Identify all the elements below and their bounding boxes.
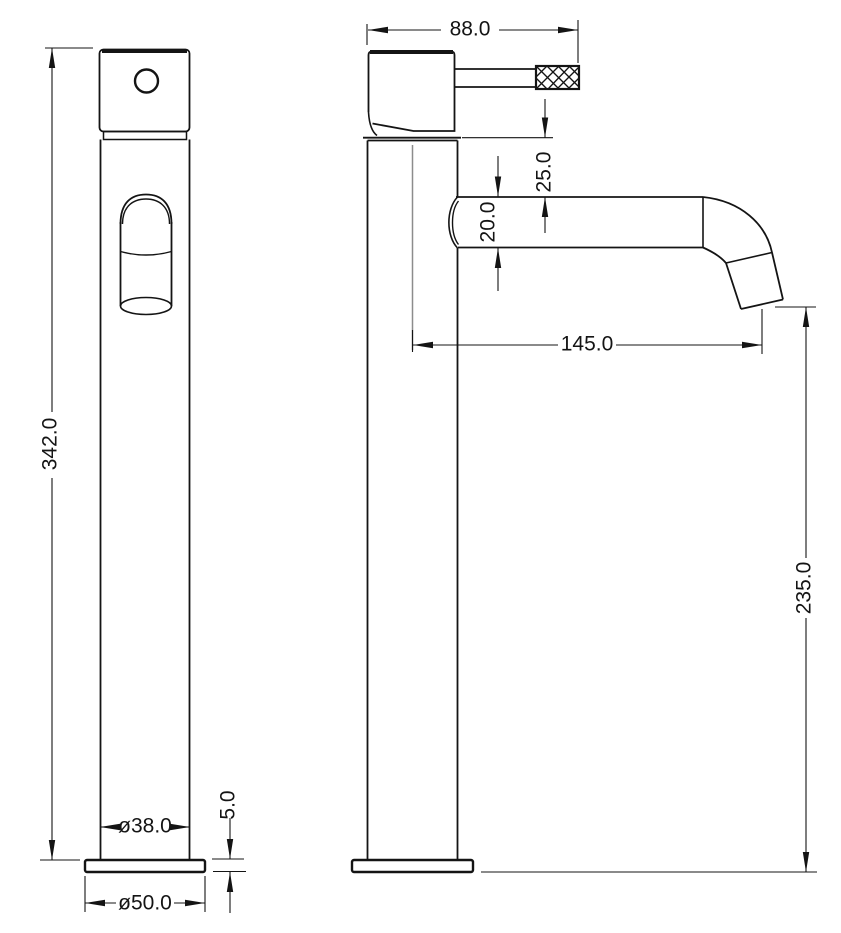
dim-spout-diameter: 20.0	[477, 156, 502, 291]
arrowhead	[100, 824, 120, 830]
arrowhead	[170, 824, 190, 830]
arrowhead	[742, 342, 762, 348]
side-base-plate	[352, 860, 473, 872]
side-head-outline	[369, 52, 455, 132]
hatch-line	[558, 66, 579, 87]
side-view	[352, 52, 783, 873]
arrowhead	[227, 839, 233, 859]
spout-bend-outer	[703, 197, 772, 253]
arrowhead	[542, 118, 548, 138]
dim-base-diameter: ø50.0	[85, 876, 205, 915]
dim-base-height: 5.0	[212, 790, 246, 913]
arrowhead	[85, 900, 105, 906]
hatch-line	[557, 67, 579, 89]
arrowhead	[49, 48, 55, 68]
front-collar	[104, 132, 187, 140]
spout-root-arc-inner	[453, 201, 459, 245]
spout-outlet-joint-line	[726, 253, 772, 264]
hatch-line	[569, 66, 579, 76]
dim-body-diameter: ø38.0	[100, 815, 190, 838]
knurl-hatch-pattern	[536, 66, 579, 89]
spout-outlet-left-edge	[726, 263, 741, 309]
front-view	[85, 50, 205, 873]
dim-spout-reach: 145.0	[413, 309, 763, 356]
dim-overall-height: 342.0	[39, 48, 94, 860]
dim-label-spout-reach: 145.0	[561, 333, 614, 356]
arrowhead	[368, 27, 388, 33]
front-head-button-hole	[135, 70, 158, 93]
arrowhead	[227, 872, 233, 892]
arrowhead	[495, 248, 501, 268]
arrowhead	[413, 342, 433, 348]
technical-drawing-canvas: 342.0 ø38.0 5.0 ø50.0	[0, 0, 841, 933]
dim-label-base-height: 5.0	[217, 790, 240, 819]
dimensions: 342.0 ø38.0 5.0 ø50.0	[39, 18, 818, 915]
arrowhead	[803, 852, 809, 872]
spout-outlet-right-edge	[772, 253, 783, 300]
dim-spout-height: 235.0	[481, 307, 817, 872]
dim-label-overall-height: 342.0	[39, 418, 62, 471]
dim-label-head-depth: 88.0	[450, 18, 491, 41]
arrowhead	[185, 900, 205, 906]
spout-outlet-face	[741, 300, 783, 310]
dim-label-base-diameter: ø50.0	[118, 892, 172, 915]
dim-label-body-diameter: ø38.0	[118, 815, 172, 838]
lever-mid-seam	[121, 252, 172, 256]
arrowhead	[49, 840, 55, 860]
lever-end-cap	[121, 298, 172, 315]
arrowhead	[558, 27, 578, 33]
dim-head-depth: 88.0	[367, 18, 578, 64]
arrowhead	[803, 307, 809, 327]
dim-label-spout-height: 235.0	[793, 562, 816, 615]
front-head-outline	[100, 50, 190, 132]
faucet-dimension-drawing: 342.0 ø38.0 5.0 ø50.0	[0, 0, 841, 933]
arrowhead	[495, 177, 501, 197]
front-lever-handle	[121, 195, 172, 315]
spout-bend-inner	[703, 248, 726, 264]
arrowhead	[542, 197, 548, 217]
front-base-plate	[85, 860, 205, 872]
hatch-line	[568, 78, 579, 89]
dim-label-spout-gap: 25.0	[533, 152, 556, 193]
lever-dome-inner	[123, 199, 170, 224]
dim-label-spout-diameter: 20.0	[477, 202, 500, 243]
